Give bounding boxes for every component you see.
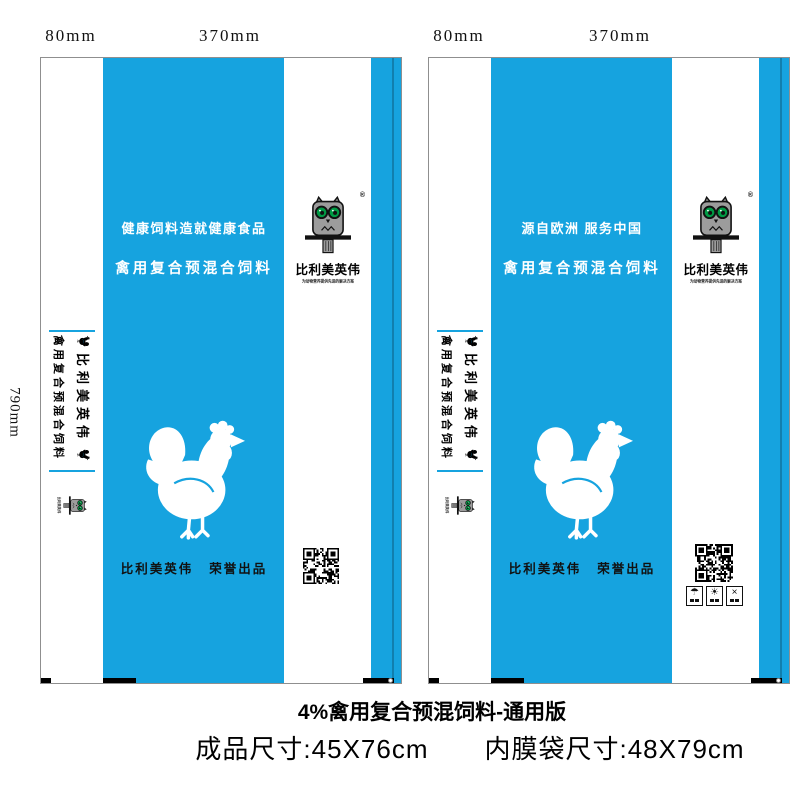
fold-line bbox=[392, 58, 394, 683]
hen-illustration bbox=[139, 418, 253, 540]
owl-icon bbox=[450, 496, 475, 515]
dim-label-face-left: 370mm bbox=[194, 26, 266, 46]
brand-tagline: 为动物营养提供先进的解决方案 bbox=[689, 278, 742, 284]
gusset-brand-row: 比利美英伟 bbox=[462, 335, 481, 461]
corner-mark bbox=[237, 381, 248, 392]
gusset-text-block: 比利美英伟 禽用复合预混合饲料 bbox=[50, 323, 94, 473]
slogan-text: 健康饲料造就健康食品 bbox=[103, 218, 285, 237]
dim-label-height: 790mm bbox=[6, 383, 23, 443]
owl-icon bbox=[305, 195, 351, 257]
hen-icon bbox=[77, 335, 90, 347]
keep-dry-icon: ☂ bbox=[686, 586, 703, 606]
owl-logo-small: 比利美英伟 bbox=[433, 488, 475, 522]
product-text: 禽用复合预混合饲料 bbox=[487, 257, 677, 278]
registration-dot bbox=[388, 678, 393, 683]
packaging-icons: ☂ ☀ × bbox=[686, 586, 743, 606]
hen-icon bbox=[77, 449, 90, 461]
gusset-brand-label: 比利美英伟 bbox=[462, 353, 481, 443]
dim-label-gusset-left: 80mm bbox=[40, 26, 102, 46]
finished-size: 成品尺寸:45X76cm bbox=[195, 729, 428, 766]
keep-away-sun-icon: ☀ bbox=[706, 586, 723, 606]
corner-mark bbox=[237, 325, 248, 336]
size-specs: 成品尺寸:45X76cm 内膜袋尺寸:48X79cm bbox=[0, 729, 800, 766]
registration-mark bbox=[103, 678, 136, 683]
gusset-text-block: 比利美英伟 禽用复合预混合饲料 bbox=[438, 323, 482, 473]
bag-back: 比利美英伟 禽用复合预混合饲料 比利美英伟 源自欧洲 服务中国 禽用复合预混合饲… bbox=[428, 57, 790, 684]
corner-mark bbox=[141, 381, 152, 392]
hen-icon bbox=[465, 335, 478, 347]
qr-code bbox=[303, 548, 339, 584]
brand-logo-block: ® 比利美英伟 为动物营养提供先进的解决方案 bbox=[285, 195, 371, 287]
brand-tagline: 为动物营养提供先进的解决方案 bbox=[301, 278, 354, 284]
footer-honor: 荣誉出品 bbox=[597, 562, 655, 576]
mini-owl-brand: 比利美英伟 bbox=[57, 497, 62, 514]
footer-brand: 比利美英伟 bbox=[509, 562, 582, 576]
edge-panel bbox=[371, 58, 401, 683]
registered-mark: ® bbox=[360, 192, 365, 199]
registration-mark bbox=[491, 678, 524, 683]
dim-label-gusset-right: 80mm bbox=[428, 26, 490, 46]
no-hooks-icon: × bbox=[726, 586, 743, 606]
owl-icon bbox=[62, 496, 87, 515]
qr-code bbox=[695, 544, 733, 582]
registered-mark: ® bbox=[748, 192, 753, 199]
dim-label-face-right: 370mm bbox=[584, 26, 656, 46]
brand-logo-block: ® 比利美英伟 为动物营养提供先进的解决方案 bbox=[673, 195, 759, 287]
fold-line bbox=[780, 58, 782, 683]
liner-size: 内膜袋尺寸:48X79cm bbox=[485, 729, 745, 766]
owl-icon bbox=[693, 195, 739, 257]
registration-dot bbox=[776, 678, 781, 683]
owl-logo-small: 比利美英伟 bbox=[45, 488, 87, 522]
gusset-product-label: 禽用复合预混合饲料 bbox=[439, 335, 455, 461]
registration-mark bbox=[429, 678, 439, 683]
edge-panel bbox=[759, 58, 789, 683]
registration-mark bbox=[41, 678, 51, 683]
footer-brand: 比利美英伟 bbox=[121, 562, 194, 576]
mini-owl-brand: 比利美英伟 bbox=[445, 497, 450, 514]
footer-line: 比利美英伟荣誉出品 bbox=[103, 558, 285, 577]
bag-front: 比利美英伟 禽用复合预混合饲料 比利美英伟 健康饲料造就健康食品 禽用复合预混合… bbox=[40, 57, 402, 684]
product-text: 禽用复合预混合饲料 bbox=[99, 257, 289, 278]
footer-honor: 荣誉出品 bbox=[209, 562, 267, 576]
hen-icon bbox=[465, 449, 478, 461]
gusset-product-label: 禽用复合预混合饲料 bbox=[51, 335, 67, 461]
gusset-brand-label: 比利美英伟 bbox=[74, 353, 93, 443]
slogan-text: 源自欧洲 服务中国 bbox=[491, 218, 673, 237]
front-panel bbox=[491, 58, 672, 683]
brand-name: 比利美英伟 bbox=[673, 259, 759, 278]
footer-line: 比利美英伟荣誉出品 bbox=[491, 558, 673, 577]
corner-mark bbox=[141, 325, 152, 336]
design-title: 4%禽用复合预混饲料-通用版 bbox=[0, 696, 800, 726]
brand-name: 比利美英伟 bbox=[285, 259, 371, 278]
window-corner-marks bbox=[141, 325, 248, 392]
hen-illustration bbox=[527, 418, 641, 540]
gusset-brand-row: 比利美英伟 bbox=[74, 335, 93, 461]
